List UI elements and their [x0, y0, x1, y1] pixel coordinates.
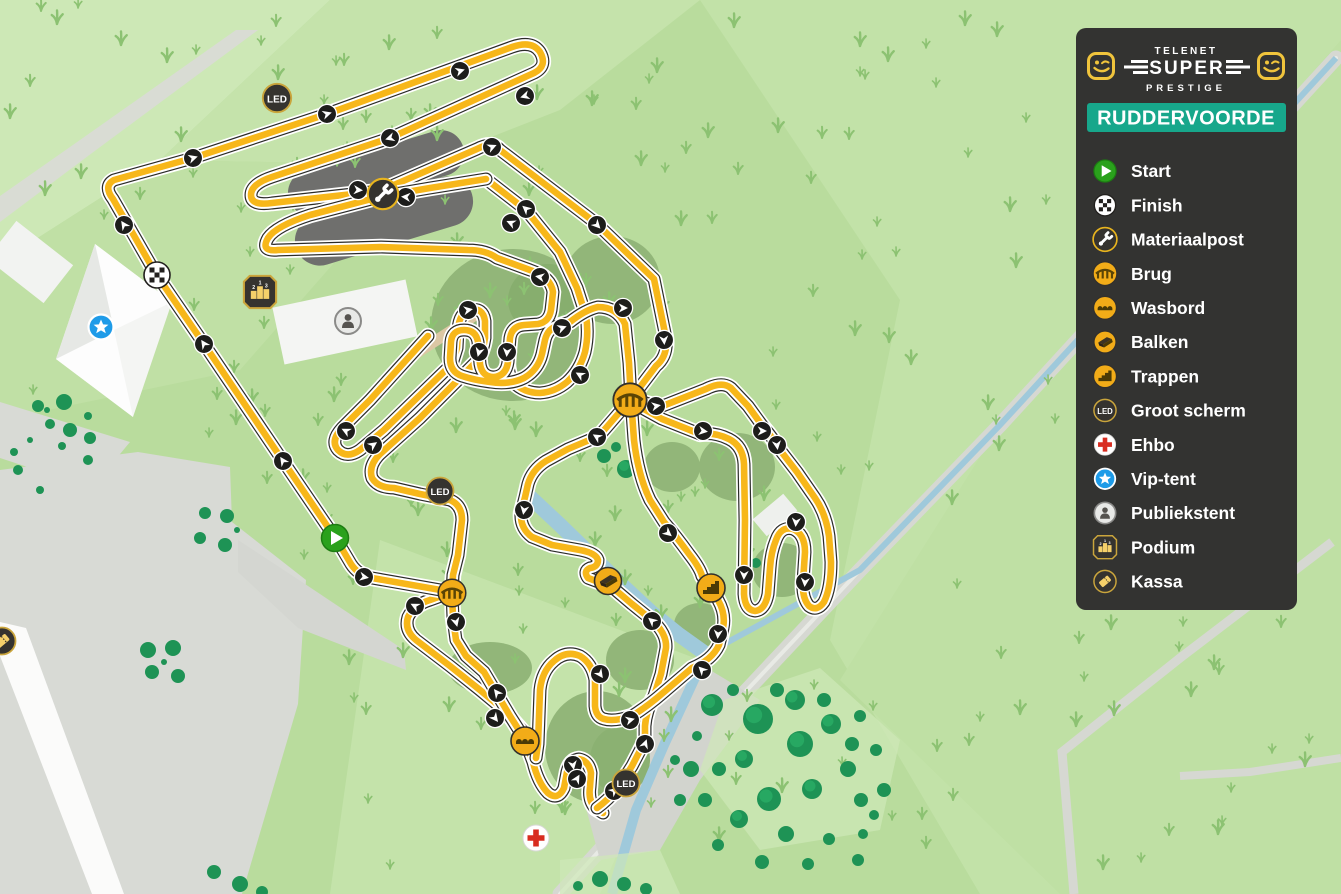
svg-text:RUDDERVOORDE: RUDDERVOORDE: [1097, 108, 1275, 130]
svg-text:SUPER: SUPER: [1149, 58, 1224, 79]
svg-text:Brug: Brug: [1131, 264, 1172, 284]
svg-text:Materiaalpost: Materiaalpost: [1131, 230, 1244, 250]
svg-text:Publiekstent: Publiekstent: [1131, 503, 1235, 523]
svg-text:Start: Start: [1131, 161, 1171, 181]
svg-text:Kassa: Kassa: [1131, 572, 1183, 592]
svg-text:Trappen: Trappen: [1131, 366, 1199, 386]
svg-text:Vip-tent: Vip-tent: [1131, 469, 1196, 489]
svg-text:Balken: Balken: [1131, 332, 1188, 352]
svg-text:Finish: Finish: [1131, 195, 1183, 215]
svg-text:Ehbo: Ehbo: [1131, 435, 1175, 455]
svg-text:Podium: Podium: [1131, 537, 1195, 557]
svg-text:Wasbord: Wasbord: [1131, 298, 1205, 318]
svg-text:PRESTIGE: PRESTIGE: [1146, 83, 1226, 94]
svg-text:Groot scherm: Groot scherm: [1131, 401, 1246, 421]
svg-text:TELENET: TELENET: [1154, 46, 1217, 57]
